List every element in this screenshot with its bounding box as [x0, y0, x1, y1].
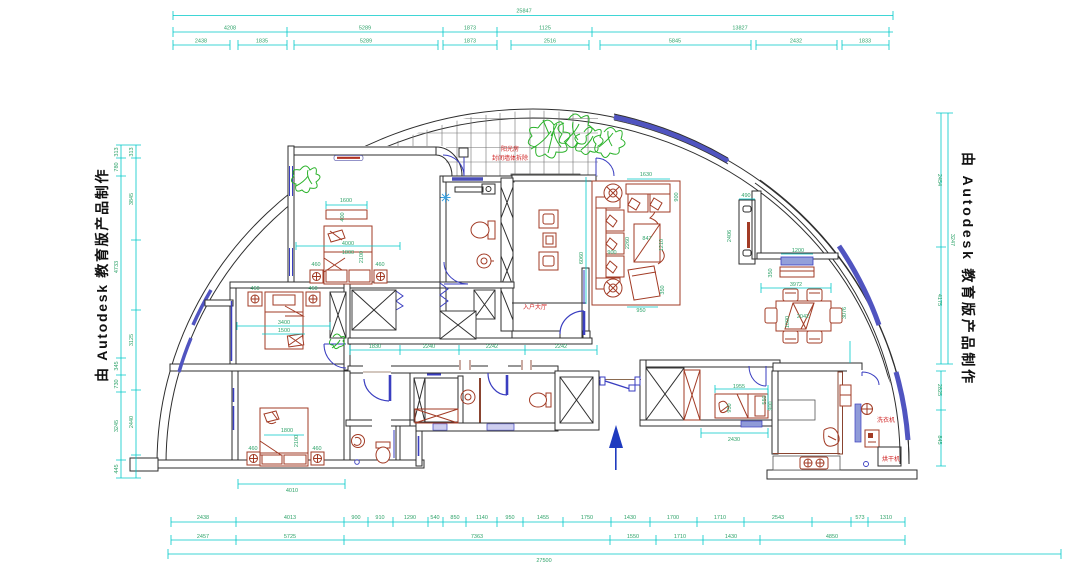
svg-text:由 Autodesk 教育版产品制作: 由 Autodesk 教育版产品制作 — [960, 152, 976, 386]
svg-text:27500: 27500 — [536, 558, 551, 564]
svg-text:1833: 1833 — [859, 39, 871, 45]
svg-text:460: 460 — [375, 262, 384, 268]
svg-text:4013: 4013 — [284, 515, 296, 521]
svg-text:4850: 4850 — [826, 534, 838, 540]
svg-text:730: 730 — [114, 379, 120, 388]
svg-text:1430: 1430 — [624, 515, 636, 521]
svg-text:5845: 5845 — [669, 39, 681, 45]
svg-text:540: 540 — [430, 515, 439, 521]
svg-text:1710: 1710 — [674, 534, 686, 540]
svg-text:3076: 3076 — [842, 307, 848, 319]
svg-text:910: 910 — [375, 515, 384, 521]
svg-text:460: 460 — [250, 286, 259, 292]
svg-text:5725: 5725 — [284, 534, 296, 540]
svg-text:350: 350 — [768, 268, 774, 277]
svg-text:4733: 4733 — [114, 261, 120, 273]
svg-text:460: 460 — [308, 286, 317, 292]
svg-text:3247: 3247 — [949, 234, 955, 246]
svg-text:3845: 3845 — [129, 193, 135, 205]
svg-text:313: 313 — [114, 147, 120, 156]
svg-text:1630: 1630 — [640, 172, 652, 178]
svg-text:洗衣机: 洗衣机 — [877, 416, 895, 424]
svg-text:847: 847 — [642, 236, 651, 242]
svg-text:445: 445 — [114, 464, 120, 473]
svg-text:2543: 2543 — [772, 515, 784, 521]
svg-text:烘干机: 烘干机 — [882, 455, 900, 463]
svg-text:1600: 1600 — [340, 198, 352, 204]
svg-text:2438: 2438 — [197, 515, 209, 521]
svg-text:4010: 4010 — [286, 488, 298, 494]
svg-text:900: 900 — [607, 250, 616, 256]
svg-text:1800: 1800 — [281, 428, 293, 434]
svg-text:25847: 25847 — [516, 9, 531, 15]
svg-text:1550: 1550 — [627, 534, 639, 540]
svg-text:460: 460 — [311, 262, 320, 268]
svg-text:4000: 4000 — [342, 241, 354, 247]
svg-text:573: 573 — [855, 515, 864, 521]
svg-text:345: 345 — [114, 361, 120, 370]
svg-text:2242: 2242 — [555, 344, 567, 350]
svg-text:2100: 2100 — [294, 435, 300, 447]
svg-text:950: 950 — [727, 403, 733, 412]
svg-text:1835: 1835 — [256, 39, 268, 45]
svg-text:950: 950 — [505, 515, 514, 521]
svg-text:1290: 1290 — [404, 515, 416, 521]
svg-text:3972: 3972 — [790, 282, 802, 288]
svg-text:1710: 1710 — [714, 515, 726, 521]
svg-text:460: 460 — [312, 446, 321, 452]
svg-text:3245: 3245 — [114, 420, 120, 432]
svg-text:阳光房: 阳光房 — [501, 145, 519, 153]
svg-text:1700: 1700 — [667, 515, 679, 521]
svg-text:850: 850 — [450, 515, 459, 521]
svg-text:1873: 1873 — [464, 26, 476, 32]
svg-text:350: 350 — [660, 285, 666, 294]
svg-text:900: 900 — [351, 515, 360, 521]
svg-text:1210: 1210 — [659, 239, 665, 251]
svg-text:13827: 13827 — [732, 26, 747, 32]
svg-text:1873: 1873 — [464, 39, 476, 45]
svg-text:2432: 2432 — [790, 39, 802, 45]
svg-text:2240: 2240 — [423, 344, 435, 350]
svg-text:1310: 1310 — [880, 515, 892, 521]
svg-text:1800: 1800 — [342, 250, 354, 256]
svg-text:2438: 2438 — [195, 39, 207, 45]
svg-text:3125: 3125 — [129, 334, 135, 346]
svg-text:2516: 2516 — [544, 39, 556, 45]
svg-text:1500: 1500 — [278, 328, 290, 334]
svg-text:780: 780 — [114, 162, 120, 171]
svg-text:900: 900 — [768, 401, 774, 410]
svg-text:845: 845 — [936, 435, 942, 444]
svg-text:4175: 4175 — [936, 294, 942, 306]
svg-text:由 Autodesk 教育版产品制作: 由 Autodesk 教育版产品制作 — [94, 168, 110, 382]
svg-text:460: 460 — [248, 446, 257, 452]
svg-text:5289: 5289 — [360, 39, 372, 45]
svg-text:2825: 2825 — [936, 384, 942, 396]
svg-text:入户大厅: 入户大厅 — [523, 303, 547, 311]
svg-text:1430: 1430 — [725, 534, 737, 540]
svg-text:490: 490 — [741, 193, 750, 199]
svg-text:2457: 2457 — [197, 534, 209, 540]
svg-text:1125: 1125 — [539, 26, 551, 32]
svg-text:2440: 2440 — [129, 416, 135, 428]
svg-text:2406: 2406 — [727, 230, 733, 242]
svg-text:4208: 4208 — [224, 26, 236, 32]
svg-text:1200: 1200 — [792, 248, 804, 254]
svg-text:400: 400 — [340, 212, 346, 221]
svg-text:2242: 2242 — [486, 344, 498, 350]
svg-text:3400: 3400 — [278, 320, 290, 326]
svg-text:1955: 1955 — [733, 384, 745, 390]
svg-text:1140: 1140 — [476, 515, 488, 521]
svg-text:2430: 2430 — [728, 437, 740, 443]
svg-text:950: 950 — [636, 308, 645, 314]
svg-text:313: 313 — [129, 147, 135, 156]
svg-text:1830: 1830 — [369, 344, 381, 350]
svg-text:5289: 5289 — [359, 26, 371, 32]
svg-text:1750: 1750 — [581, 515, 593, 521]
svg-text:封闭墙体拆除: 封闭墙体拆除 — [492, 154, 528, 162]
svg-text:2260: 2260 — [625, 237, 631, 249]
svg-text:1455: 1455 — [537, 515, 549, 521]
svg-text:2100: 2100 — [359, 251, 365, 263]
svg-text:900: 900 — [674, 192, 680, 201]
svg-text:6060: 6060 — [579, 252, 585, 264]
svg-text:2042: 2042 — [797, 314, 809, 320]
svg-text:2454: 2454 — [936, 174, 942, 186]
svg-text:1090: 1090 — [785, 316, 791, 328]
svg-text:7363: 7363 — [471, 534, 483, 540]
